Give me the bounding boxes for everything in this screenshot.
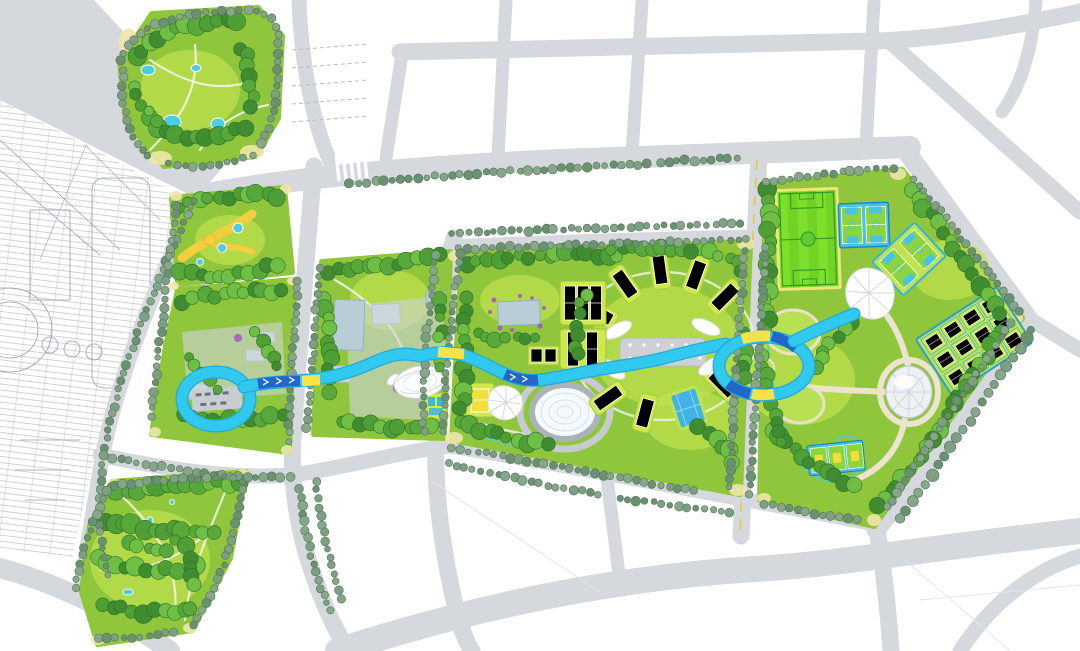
tree — [159, 544, 173, 558]
tree — [940, 452, 949, 461]
tree — [321, 528, 329, 536]
tree — [166, 245, 174, 253]
tree — [472, 169, 482, 179]
tree — [507, 167, 514, 174]
tree — [431, 172, 438, 179]
tree — [589, 240, 598, 249]
tree — [785, 504, 793, 512]
tree — [591, 224, 600, 233]
tree — [570, 328, 585, 343]
tree — [421, 333, 431, 343]
tree — [465, 449, 471, 455]
tree — [288, 353, 297, 362]
tree — [389, 419, 405, 435]
tree — [161, 629, 168, 636]
tree — [103, 563, 109, 569]
tree — [237, 120, 253, 136]
tree — [244, 6, 253, 15]
tree — [901, 477, 908, 484]
tree — [1021, 332, 1034, 345]
tree — [321, 537, 330, 546]
tree — [268, 115, 275, 122]
tree — [762, 244, 769, 251]
tree — [1000, 287, 1008, 295]
tree — [148, 413, 156, 421]
tree — [548, 164, 558, 174]
tree — [327, 607, 334, 614]
tree — [321, 591, 328, 598]
tree — [826, 511, 835, 520]
tree — [132, 337, 140, 345]
tree — [97, 477, 106, 486]
tree — [683, 244, 698, 259]
tree — [690, 157, 699, 166]
tree — [308, 366, 315, 373]
tree — [452, 401, 466, 415]
tree — [128, 634, 136, 642]
tree — [274, 83, 280, 89]
tree — [687, 223, 693, 229]
tree — [117, 91, 127, 101]
tree — [490, 229, 496, 235]
tree — [700, 238, 707, 245]
tree — [291, 328, 297, 334]
tree — [476, 449, 482, 455]
tree — [641, 498, 648, 505]
tree — [247, 184, 264, 201]
tree — [130, 345, 137, 352]
tree — [490, 451, 497, 458]
tree — [325, 546, 331, 552]
tree — [144, 25, 150, 31]
tree — [642, 241, 648, 247]
tree — [456, 259, 463, 266]
tree — [207, 162, 214, 169]
tree — [170, 628, 178, 636]
tree — [531, 333, 540, 342]
tree — [174, 161, 182, 169]
tree — [171, 201, 180, 210]
tree — [172, 210, 181, 219]
tree — [759, 251, 769, 261]
tree — [535, 250, 546, 261]
tree — [222, 562, 228, 568]
tree — [984, 388, 993, 397]
tree — [311, 561, 318, 568]
tree — [676, 221, 685, 230]
tree — [460, 291, 473, 304]
tree — [569, 486, 578, 495]
tree — [420, 410, 428, 418]
tree — [726, 466, 736, 476]
tree — [130, 88, 142, 100]
tree — [211, 585, 218, 592]
tree — [524, 243, 531, 250]
tree — [159, 18, 169, 28]
tree — [120, 73, 128, 81]
tree — [624, 497, 630, 503]
tree — [217, 6, 226, 15]
tree — [275, 473, 284, 482]
tree — [643, 222, 650, 229]
tree — [250, 152, 257, 159]
tree — [207, 526, 221, 540]
tree — [626, 160, 634, 168]
tree — [105, 417, 113, 425]
tree — [757, 311, 765, 319]
tree — [115, 385, 122, 392]
tree — [998, 334, 1004, 340]
tree — [615, 239, 624, 248]
tree — [188, 204, 194, 210]
tree — [853, 516, 861, 524]
tree — [539, 242, 548, 251]
tree — [230, 475, 237, 482]
tree — [921, 481, 930, 490]
tree — [748, 482, 754, 488]
tree — [745, 491, 753, 499]
tree — [717, 236, 723, 242]
tree — [275, 31, 282, 38]
tree — [315, 576, 323, 584]
tree — [489, 245, 495, 251]
tree — [259, 473, 268, 482]
tree — [665, 158, 674, 167]
tree — [466, 229, 472, 235]
tree — [201, 192, 213, 204]
tree — [324, 600, 330, 606]
tree — [227, 8, 236, 17]
tree — [448, 317, 455, 324]
tree — [445, 459, 452, 466]
tree — [202, 9, 209, 16]
tree — [755, 362, 761, 368]
tree — [683, 504, 691, 512]
tree — [115, 395, 121, 401]
tree — [753, 370, 762, 379]
tree — [168, 237, 175, 244]
tree — [500, 432, 511, 443]
tree — [304, 533, 313, 542]
tree — [549, 461, 557, 469]
tree — [739, 254, 748, 263]
tree — [451, 283, 458, 290]
tree — [727, 219, 736, 228]
tree — [272, 361, 282, 371]
tree — [884, 503, 891, 510]
tree — [483, 449, 490, 456]
tree — [907, 496, 918, 507]
tree — [658, 482, 664, 488]
tree — [261, 407, 279, 425]
tree — [202, 473, 211, 482]
tree — [123, 117, 131, 125]
tree — [505, 241, 514, 250]
tree — [651, 499, 657, 505]
tree — [293, 310, 300, 317]
tree — [700, 157, 707, 164]
tree — [442, 402, 448, 408]
tree — [657, 159, 665, 167]
tree — [293, 292, 302, 301]
tree — [109, 409, 117, 417]
tree — [184, 210, 193, 219]
tree — [948, 222, 955, 229]
tree — [327, 561, 335, 569]
tree — [155, 337, 164, 346]
tree — [497, 168, 506, 177]
tree — [440, 173, 448, 181]
tree — [1009, 353, 1018, 362]
tree — [138, 321, 144, 327]
tree — [147, 633, 153, 639]
tree — [496, 242, 505, 251]
tree — [930, 432, 938, 440]
tree — [517, 227, 523, 233]
tree — [291, 317, 300, 326]
tree — [757, 321, 765, 329]
tree — [442, 385, 449, 392]
tree — [892, 488, 901, 497]
tree — [311, 567, 320, 576]
tree — [419, 401, 427, 409]
tree — [814, 172, 821, 179]
pond — [141, 65, 155, 75]
tree — [254, 8, 260, 14]
tree — [983, 355, 991, 363]
tree — [150, 20, 160, 30]
tree — [728, 416, 737, 425]
tree — [430, 267, 438, 275]
tree — [455, 267, 461, 273]
tree — [317, 511, 326, 520]
tree — [194, 476, 201, 483]
tree — [959, 425, 968, 434]
tree — [125, 124, 134, 133]
tree — [362, 179, 370, 187]
tree — [609, 240, 615, 246]
tree — [88, 528, 94, 534]
tree — [198, 606, 206, 614]
tree — [235, 7, 242, 14]
tree — [920, 446, 929, 455]
tree — [776, 437, 786, 447]
tree — [723, 154, 732, 163]
tree — [618, 161, 626, 169]
tree — [864, 166, 870, 172]
tree — [287, 412, 295, 420]
tree — [533, 226, 541, 234]
tree — [847, 477, 862, 492]
tree — [102, 633, 112, 643]
tree — [144, 106, 154, 116]
tree — [471, 245, 480, 254]
tree — [650, 240, 656, 246]
tree — [515, 244, 523, 252]
tree — [188, 475, 195, 482]
tree — [694, 221, 701, 228]
tree — [180, 219, 186, 225]
tree — [261, 11, 267, 17]
tree — [396, 175, 404, 183]
tree — [484, 230, 490, 236]
tree — [335, 586, 344, 595]
tree — [762, 178, 769, 185]
tree — [221, 473, 227, 479]
tree — [937, 207, 944, 214]
tree — [162, 277, 170, 285]
tree — [98, 537, 107, 546]
tree — [769, 501, 776, 508]
tree — [75, 567, 84, 576]
tree — [213, 575, 222, 584]
tree — [547, 242, 554, 249]
tree — [709, 237, 715, 243]
tree — [183, 602, 197, 616]
tree — [420, 378, 427, 385]
tree — [428, 284, 435, 291]
tree — [286, 472, 295, 481]
tree — [313, 486, 320, 493]
tree — [523, 166, 533, 176]
tree — [449, 309, 455, 315]
tree — [618, 224, 625, 231]
tree — [420, 387, 426, 393]
tree — [673, 485, 681, 493]
tree — [442, 369, 449, 376]
tree — [446, 335, 453, 342]
tree — [845, 166, 855, 176]
tree — [934, 460, 943, 469]
tree — [500, 452, 507, 459]
tree — [873, 165, 879, 171]
tree — [316, 264, 324, 272]
tree — [758, 304, 764, 310]
tree — [449, 301, 457, 309]
tree — [749, 447, 756, 454]
tree — [274, 283, 288, 297]
tree — [157, 461, 166, 470]
tree — [424, 175, 430, 181]
tree — [419, 419, 427, 427]
tree — [944, 441, 956, 453]
tree — [421, 394, 428, 401]
tree — [508, 226, 516, 234]
tree — [759, 294, 768, 303]
tree — [599, 242, 605, 248]
tree — [945, 413, 951, 419]
tree — [882, 166, 888, 172]
tree — [213, 385, 222, 394]
tree — [961, 240, 970, 249]
tree — [572, 347, 585, 360]
tree — [746, 472, 756, 482]
tree — [433, 331, 444, 342]
tree — [129, 539, 143, 553]
tree — [322, 320, 337, 335]
tree — [542, 437, 556, 451]
tree — [610, 224, 618, 232]
tree — [405, 175, 413, 183]
tree — [170, 475, 179, 484]
tree — [337, 595, 345, 603]
tree — [439, 411, 448, 420]
tree — [227, 536, 236, 545]
tree — [295, 484, 304, 493]
tree — [304, 408, 312, 416]
tree — [633, 476, 641, 484]
tree — [469, 466, 475, 472]
tree — [421, 428, 429, 436]
tree — [152, 379, 159, 386]
tree — [535, 479, 543, 487]
tree — [1006, 319, 1015, 328]
tree — [130, 134, 137, 141]
tree — [120, 370, 127, 377]
masterplan-svg: Riverside sports park masterplan — aeria… — [0, 0, 1080, 651]
tree — [185, 291, 199, 305]
tree — [99, 451, 109, 461]
tree — [267, 472, 276, 481]
tree — [545, 483, 552, 490]
tree — [79, 551, 87, 559]
tree — [130, 36, 139, 45]
tree — [559, 463, 565, 469]
tree — [441, 393, 449, 401]
tree — [736, 220, 744, 228]
tree — [123, 109, 130, 116]
tree — [633, 240, 640, 247]
tree — [457, 324, 469, 336]
tree — [574, 297, 584, 307]
tree — [777, 503, 785, 511]
tree — [963, 384, 970, 391]
tree — [193, 614, 201, 622]
tree — [590, 469, 599, 478]
tree — [561, 227, 567, 233]
tree — [230, 519, 240, 529]
tree — [160, 303, 169, 312]
tree — [271, 98, 280, 107]
tree — [311, 323, 319, 331]
tree — [327, 554, 334, 561]
tree — [944, 214, 951, 221]
tree — [755, 354, 764, 363]
tree — [170, 229, 177, 236]
tree — [661, 222, 667, 228]
tree — [293, 285, 300, 292]
tree — [100, 496, 107, 503]
tree — [344, 179, 353, 188]
tree — [191, 198, 197, 204]
tree — [460, 464, 468, 472]
tree — [821, 170, 828, 177]
tree — [267, 14, 276, 23]
tree — [231, 158, 238, 165]
tree — [750, 423, 758, 431]
tree — [176, 466, 182, 472]
tree — [742, 235, 749, 242]
tree — [99, 461, 105, 467]
tree — [149, 388, 159, 398]
tree — [960, 391, 966, 397]
tree — [214, 475, 220, 481]
tree — [331, 571, 337, 577]
tree — [869, 497, 885, 513]
tree — [272, 23, 280, 31]
tree — [315, 495, 323, 503]
tree — [762, 261, 768, 267]
